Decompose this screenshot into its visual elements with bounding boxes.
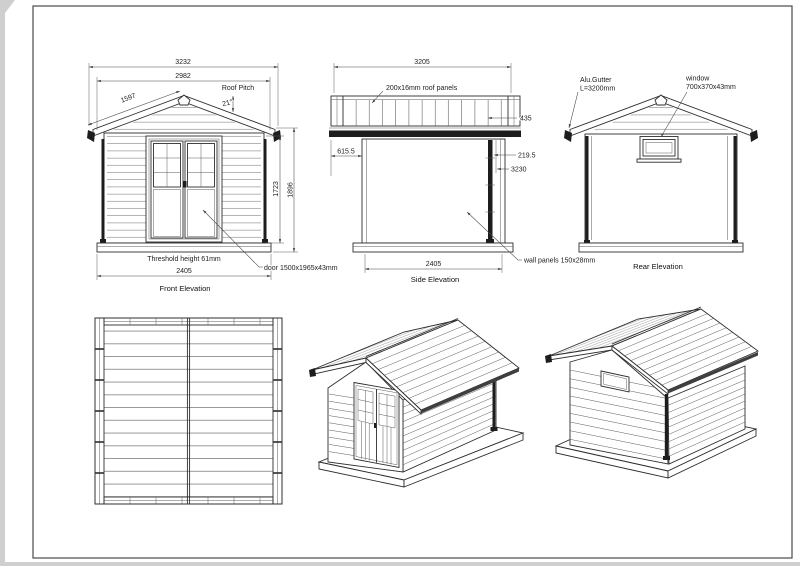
gutter-note-line1: Alu.Gutter — [580, 77, 612, 84]
dim-total-height: 1896 — [288, 182, 295, 198]
front-elevation-title: Front Elevation — [159, 284, 210, 293]
dim-gutter-offset: 219.5 — [518, 153, 536, 160]
front-downpipe-left — [102, 139, 105, 239]
roof-pitch-label: Roof Pitch — [222, 85, 254, 92]
gutter-note-line2: L=3200mm — [580, 86, 615, 93]
side-downpipe — [488, 140, 493, 240]
roof-plan-view — [95, 318, 282, 504]
wall-panel-note: wall panels 150x28mm — [523, 258, 595, 265]
dim-roof-length: 3205 — [414, 59, 430, 66]
door-note: door 1500x1965x43mm — [264, 265, 338, 272]
window-note-line1: window — [685, 76, 710, 83]
dim-wall-length: 2405 — [426, 261, 442, 268]
side-elevation-title: Side Elevation — [411, 275, 460, 284]
side-base — [353, 243, 513, 252]
rear-downpipe-left — [586, 136, 589, 240]
window-note-line2: 700x370x43mm — [686, 84, 736, 91]
shed-technical-drawing: 3232 2982 1597 Roof Pitch 21° 1723 1896 … — [0, 0, 800, 566]
dim-overall-width: 3232 — [175, 59, 191, 66]
door-handle — [183, 181, 187, 188]
dim-roof-overhang: 435 — [520, 116, 532, 123]
dim-overall-length: 3230 — [511, 167, 527, 174]
drawing-sheet: 3232 2982 1597 Roof Pitch 21° 1723 1896 … — [0, 0, 800, 566]
dim-roof-width: 2982 — [175, 73, 191, 80]
threshold-note: Threshold height 61mm — [147, 256, 221, 263]
roof-panel-note: 200x16mm roof panels — [386, 85, 458, 92]
front-double-door — [146, 136, 222, 242]
rear-downpipe-right — [734, 136, 737, 240]
rear-window — [637, 137, 681, 163]
front-downpipe-right — [264, 139, 267, 239]
side-fascia — [329, 131, 521, 138]
rear-base — [579, 243, 743, 252]
iso-rear-downpipe — [665, 394, 668, 458]
front-base — [97, 243, 271, 252]
dim-eave-offset: 615.5 — [337, 149, 355, 156]
iso-front-door — [354, 383, 399, 468]
dim-wall-height: 1723 — [273, 181, 280, 197]
dim-base-width: 2405 — [176, 268, 192, 275]
rear-elevation-title: Rear Elevation — [633, 262, 683, 271]
